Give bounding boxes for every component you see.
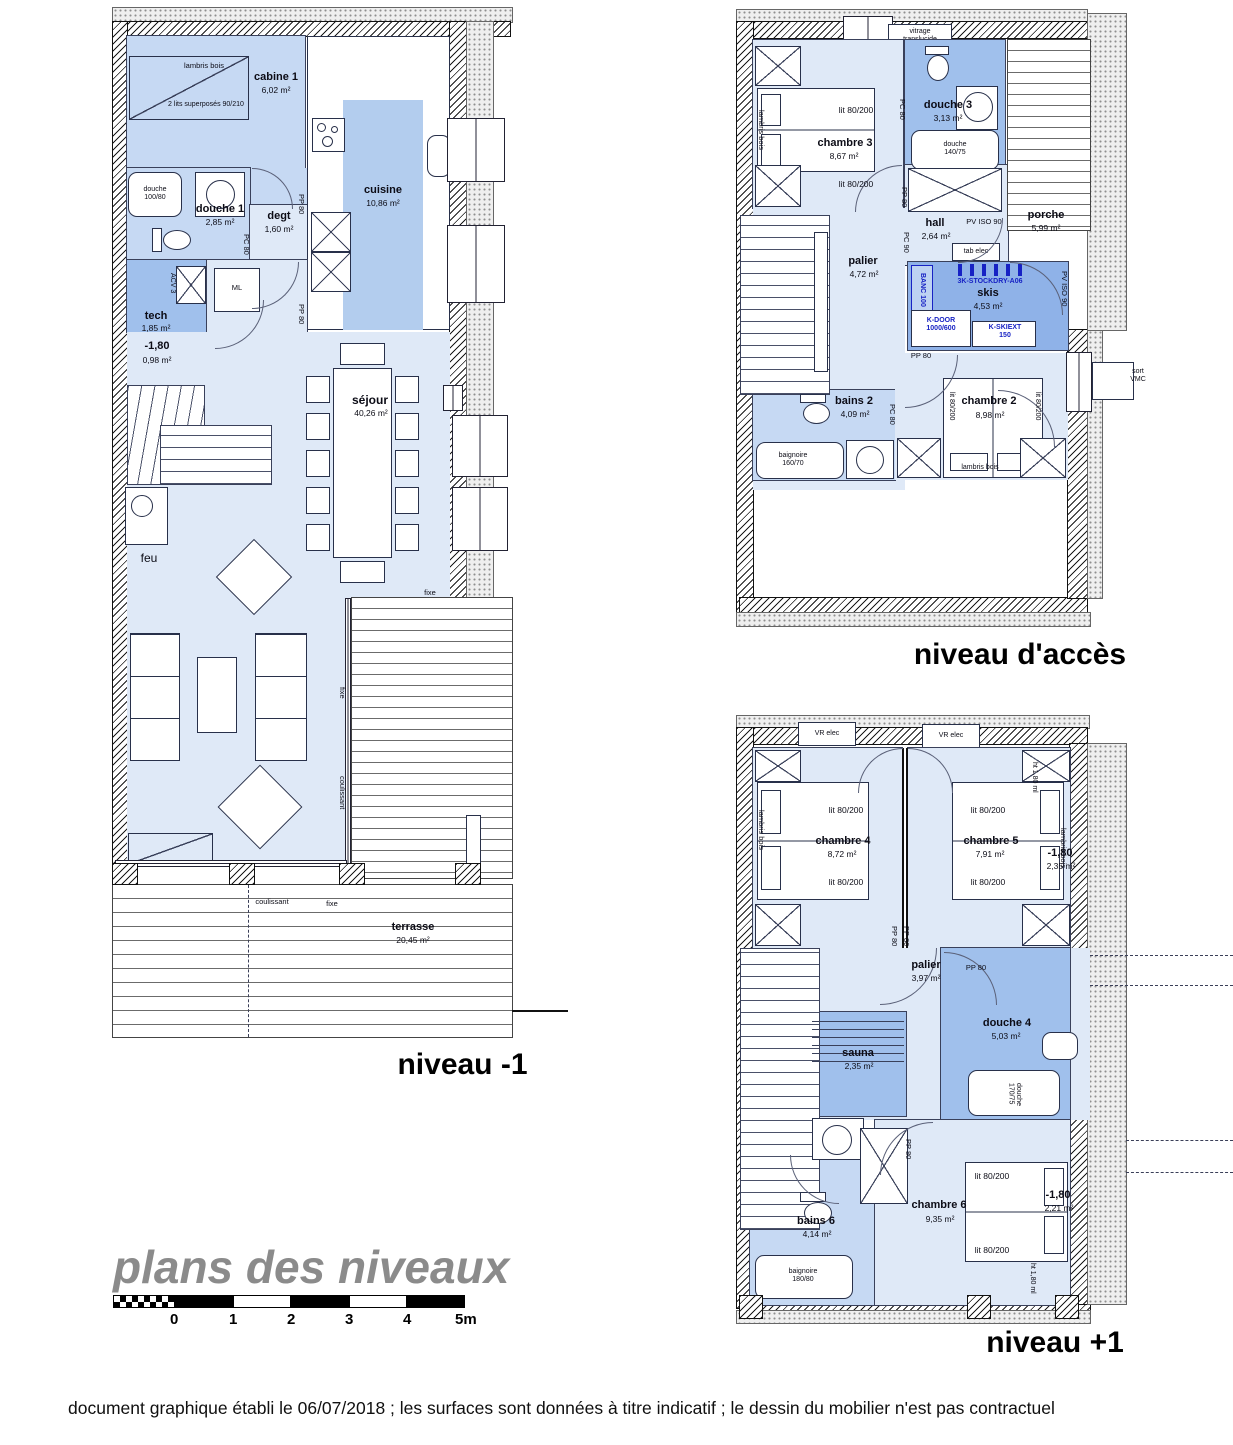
scale-seg bbox=[175, 1295, 233, 1308]
label-chambre5: chambre 5 bbox=[958, 836, 1024, 848]
label-ht180: ht 1,80 ml bbox=[1026, 1256, 1036, 1300]
label-sauna: sauna bbox=[836, 1048, 880, 1060]
survey-line bbox=[1090, 985, 1233, 987]
label-lit: lit 80/200 bbox=[966, 1246, 1018, 1255]
area-douche4: 5,03 m² bbox=[984, 1032, 1028, 1041]
scale-tick: 1 bbox=[229, 1311, 237, 1328]
label-lambris-v: lambris bois bbox=[756, 800, 765, 860]
sheet-title: plans des niveaux bbox=[113, 1240, 533, 1294]
label-lit: lit 80/200 bbox=[962, 806, 1014, 815]
area-bains6: 4,14 m² bbox=[796, 1230, 838, 1239]
area-sauna: 2,35 m² bbox=[840, 1062, 878, 1071]
wardrobe bbox=[755, 904, 801, 946]
label-chambre6: chambre 6 bbox=[904, 1200, 974, 1212]
plan-niveau-p1: VR elec VR elec douche 170/75 bbox=[0, 0, 1233, 1445]
scale-seg bbox=[291, 1295, 349, 1308]
pillow bbox=[1044, 1216, 1064, 1254]
scale-tick: 0 bbox=[170, 1311, 178, 1328]
scale-checker bbox=[113, 1295, 175, 1308]
title-niveau-p1: niveau +1 bbox=[975, 1326, 1135, 1360]
wardrobe bbox=[755, 750, 801, 782]
label-lambris-v: lambris bois bbox=[1058, 818, 1067, 878]
label-palier-p1: palier bbox=[900, 960, 952, 972]
survey-line bbox=[1126, 1172, 1233, 1174]
wardrobe bbox=[1022, 904, 1070, 946]
label-vr-elec: VR elec bbox=[802, 730, 852, 738]
washbasin-douche4 bbox=[1042, 1032, 1078, 1060]
wall bbox=[737, 1311, 1090, 1323]
survey-line bbox=[1090, 955, 1233, 957]
footer-note: document graphique établi le 06/07/2018 … bbox=[68, 1398, 1188, 1419]
floor-plans-sheet: lambris bois cabine 1 6,02 m² 2 lits sup… bbox=[0, 0, 1233, 1445]
label-lit: lit 80/200 bbox=[820, 806, 872, 815]
scale-seg bbox=[407, 1295, 465, 1308]
scale-tick: 4 bbox=[403, 1311, 411, 1328]
label-douche4: douche 4 bbox=[974, 1018, 1040, 1030]
scale-tick: 2 bbox=[287, 1311, 295, 1328]
survey-line bbox=[1126, 1140, 1233, 1142]
area-chambre6: 9,35 m² bbox=[918, 1215, 962, 1224]
label-baignoire6: baignoire 180/80 bbox=[778, 1268, 828, 1283]
label-pp80: PP 80 bbox=[900, 922, 910, 950]
scale-seg bbox=[233, 1295, 291, 1308]
washer-drum bbox=[822, 1125, 852, 1155]
wall bbox=[1088, 744, 1126, 1304]
label-ht180: ht 1,80 ml bbox=[1028, 755, 1038, 799]
scale-bar: 0 1 2 3 4 5m bbox=[113, 1295, 473, 1327]
label-chambre4: chambre 4 bbox=[810, 836, 876, 848]
post bbox=[1056, 1296, 1078, 1318]
label-pp80: PP 80 bbox=[888, 922, 898, 950]
wall bbox=[737, 716, 1089, 728]
label-shower-tray4: douche 170/75 bbox=[1008, 1074, 1022, 1114]
wall bbox=[740, 728, 1087, 744]
area-niche6: 2,21 m² bbox=[1040, 1204, 1078, 1213]
scale-seg bbox=[349, 1295, 407, 1308]
label-lit: lit 80/200 bbox=[820, 878, 872, 887]
post bbox=[968, 1296, 990, 1318]
area-chambre4: 8,72 m² bbox=[820, 850, 864, 859]
label-lit: lit 80/200 bbox=[962, 878, 1014, 887]
label-lit: lit 80/200 bbox=[966, 1172, 1018, 1181]
area-palier-p1: 3,97 m² bbox=[906, 974, 946, 983]
label-pp80: PP 80 bbox=[960, 964, 992, 972]
area-chambre5: 7,91 m² bbox=[968, 850, 1012, 859]
label-vr-elec: VR elec bbox=[926, 732, 976, 740]
label-niveau-moins180-6: -1,80 bbox=[1036, 1190, 1080, 1202]
label-bains6: bains 6 bbox=[788, 1216, 844, 1228]
pillow bbox=[1040, 790, 1060, 834]
label-pp80: PP 80 bbox=[902, 1135, 912, 1163]
scale-tick: 3 bbox=[345, 1311, 353, 1328]
scale-tick: 5m bbox=[455, 1311, 477, 1328]
post bbox=[740, 1296, 762, 1318]
